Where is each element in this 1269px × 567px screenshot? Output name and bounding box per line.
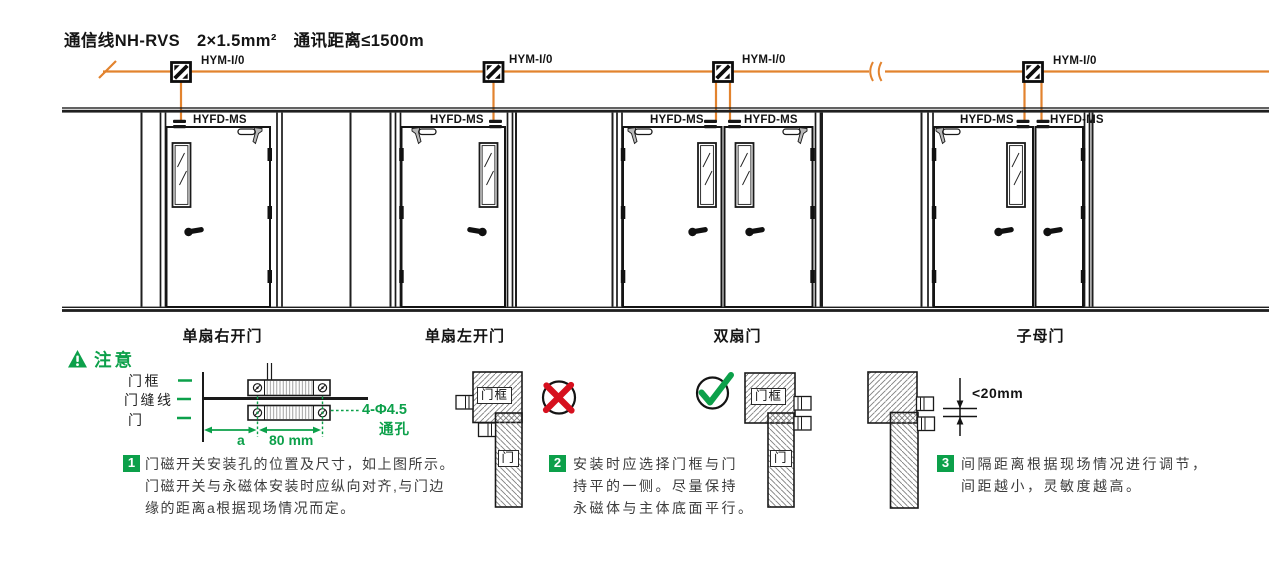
door-hinge <box>810 270 815 283</box>
magnet-body <box>248 406 330 421</box>
door-name: 单扇右开门 <box>160 325 285 346</box>
warning-triangle-icon <box>68 350 87 368</box>
door-name: 子母门 <box>978 325 1103 346</box>
magnet-plug-icon <box>794 417 811 431</box>
sensor-label: HYFD-MS <box>1050 114 1104 126</box>
door-window <box>1007 143 1025 207</box>
door-hinge <box>1081 206 1086 219</box>
door-window <box>698 143 716 207</box>
switch-plug-icon <box>456 396 473 410</box>
door-window <box>173 143 191 207</box>
door-hinge <box>268 270 273 283</box>
note-line: 门磁开关与永磁体安装时应纵向对齐,与门边 <box>145 476 445 496</box>
door-magnetic-sensor-icon <box>1037 120 1050 128</box>
item-number-badge: 1 <box>123 455 140 472</box>
dim-a-label: a <box>237 432 245 448</box>
door-window <box>480 143 498 207</box>
label-dashes <box>177 381 192 419</box>
door-hinge <box>932 148 937 161</box>
sensor-label: HYFD-MS <box>193 114 247 126</box>
door-name: 单扇左开门 <box>400 325 530 346</box>
door-single-right <box>161 113 283 307</box>
sensor-label: HYFD-MS <box>650 114 704 126</box>
holes-label-line1: 4-Φ4.5 <box>362 402 407 418</box>
gap-line-label: 门缝线 <box>124 390 174 410</box>
door-hinge <box>932 206 937 219</box>
door-hinge <box>268 206 273 219</box>
door-hinge <box>399 148 404 161</box>
module-drop-lines <box>181 81 1042 120</box>
door-hinge <box>621 206 626 219</box>
note-line: 间距越小，灵敏度越高。 <box>961 476 1143 496</box>
switch-plug-icon <box>794 397 811 411</box>
door-magnetic-sensor-icon <box>1017 120 1030 128</box>
cross-mark-icon <box>543 382 575 414</box>
module-label: HYM-I/0 <box>201 55 245 67</box>
door-double <box>617 113 821 307</box>
io-module-icon <box>484 63 503 82</box>
door-hinge <box>621 148 626 161</box>
switch-plug-icon <box>917 397 934 411</box>
installation-diagram: 通信线NH-RVS 2×1.5mm² 通讯距离≤1500m HYM-I/0 HY… <box>0 0 1269 567</box>
sensor-label: HYFD-MS <box>430 114 484 126</box>
door-hinge <box>1081 148 1086 161</box>
door-single-left <box>396 113 513 307</box>
note-line: 间隔距离根据现场情况进行调节， <box>961 454 1209 474</box>
note-line: 门磁开关安装孔的位置及尺寸，如上图所示。 <box>145 454 455 474</box>
door-block <box>891 413 919 509</box>
door-hinge <box>1081 270 1086 283</box>
door-name: 双扇门 <box>675 325 800 346</box>
door-hinge <box>268 148 273 161</box>
door-hinge <box>810 206 815 219</box>
door-hinge <box>932 270 937 283</box>
frame-label-box: 门框 <box>477 387 512 404</box>
mounting-detail-drawing <box>177 363 368 442</box>
note-line: 安装时应选择门框与门 <box>573 454 738 474</box>
notice-title: 注意 <box>94 347 135 372</box>
door-magnetic-sensor-icon <box>173 120 186 128</box>
bus-break-symbol <box>869 59 885 84</box>
magnet-plug-icon <box>479 423 496 437</box>
frame-label-box: 门框 <box>751 388 786 405</box>
bus-end-tick <box>99 61 116 78</box>
door-hinge <box>399 206 404 219</box>
door-magnetic-sensor-icon <box>489 120 502 128</box>
io-module-icon <box>172 63 191 82</box>
door-hinge <box>810 148 815 161</box>
item-number-badge: 2 <box>549 455 566 472</box>
door-label: 门 <box>128 410 145 430</box>
door-mother-child <box>928 113 1090 307</box>
magnet-plug-icon <box>918 417 935 431</box>
module-label: HYM-I/0 <box>509 54 553 66</box>
item-number-badge: 3 <box>937 455 954 472</box>
frame-label: 门框 <box>128 371 161 391</box>
door-label-box: 门 <box>498 450 520 467</box>
io-module-icon <box>1024 63 1043 82</box>
check-mark-icon <box>697 375 731 409</box>
sensor-label: HYFD-MS <box>744 114 798 126</box>
dim-width-label: 80 mm <box>269 432 313 448</box>
io-module-icon <box>714 63 733 82</box>
sensor-label: HYFD-MS <box>960 114 1014 126</box>
door-hinge <box>621 270 626 283</box>
door-hinge <box>399 270 404 283</box>
door-window <box>736 143 754 207</box>
door-leaf-small <box>1036 127 1084 307</box>
module-label: HYM-I/0 <box>1053 55 1097 67</box>
switch-body <box>248 380 330 396</box>
comm-line-spec: 通信线NH-RVS 2×1.5mm² 通讯距离≤1500m <box>64 27 424 51</box>
holes-label-line2: 通孔 <box>379 418 410 439</box>
door-label-box: 门 <box>770 450 792 467</box>
door-magnetic-sensor-icon <box>728 120 741 128</box>
note-line: 缘的距离a根据现场情况而定。 <box>145 498 356 518</box>
module-label: HYM-I/0 <box>742 54 786 66</box>
sensor-cable <box>268 363 272 380</box>
note-line: 永磁体与主体底面平行。 <box>573 498 755 518</box>
note-line: 持平的一侧。尽量保持 <box>573 476 738 496</box>
gap-dim-label: <20mm <box>972 385 1023 401</box>
door-magnetic-sensor-icon <box>704 120 717 128</box>
